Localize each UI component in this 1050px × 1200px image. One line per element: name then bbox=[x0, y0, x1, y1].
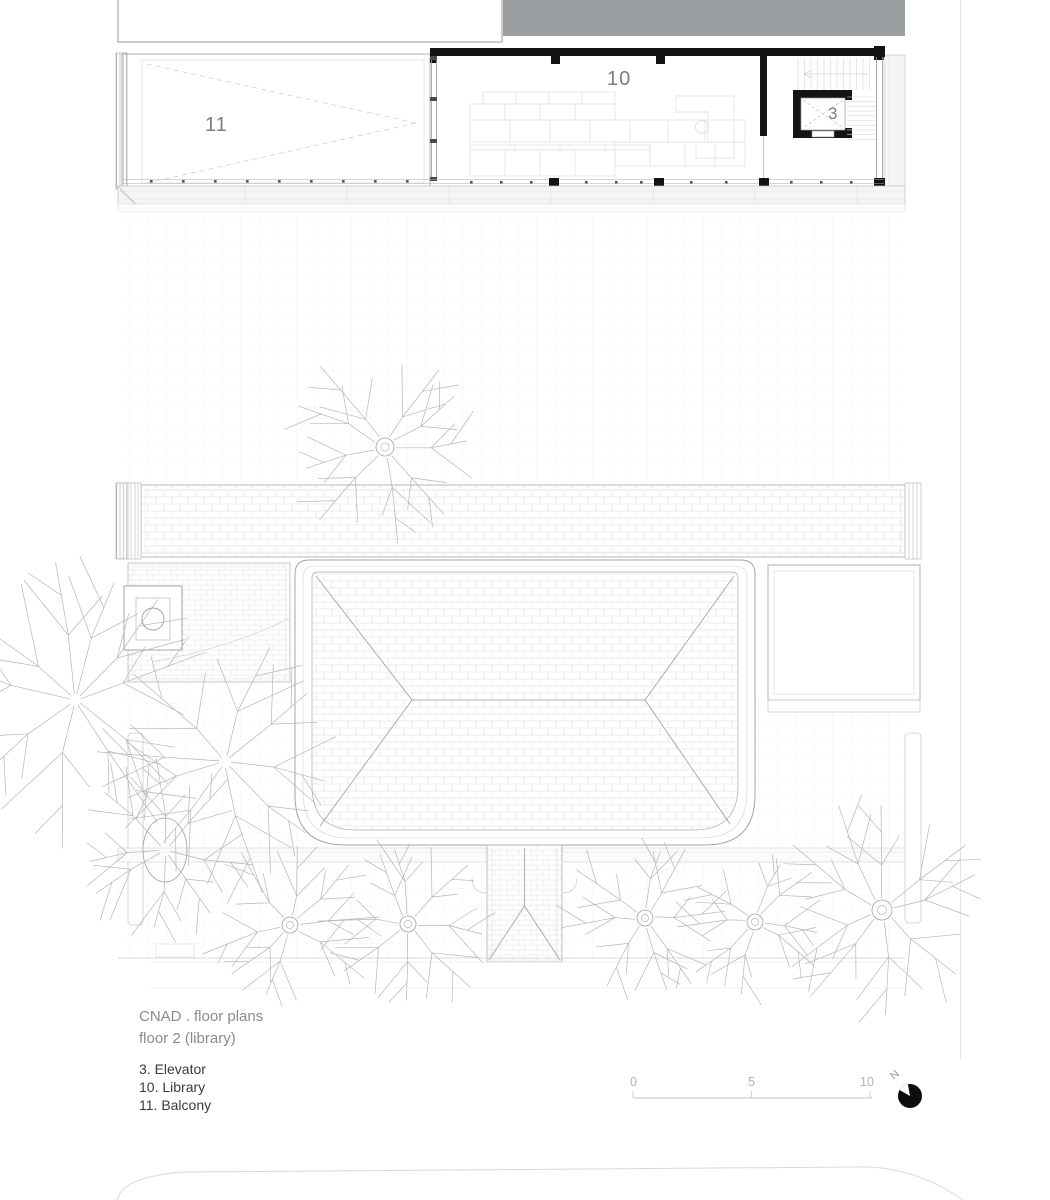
room-label-library: 10 bbox=[607, 68, 631, 90]
annex-room bbox=[768, 565, 920, 712]
legend: 3. Elevator 10. Library 11. Balcony bbox=[139, 1060, 211, 1114]
skylight bbox=[124, 586, 182, 650]
scale-tick-0: 0 bbox=[630, 1075, 637, 1089]
header-gray-block bbox=[503, 0, 905, 36]
title-block: CNAD . floor plans floor 2 (library) bbox=[139, 1006, 263, 1050]
elevator bbox=[793, 90, 852, 138]
neighbor-building-outline bbox=[118, 0, 502, 42]
room-label-elevator: 3 bbox=[828, 104, 838, 123]
planter-left bbox=[128, 733, 143, 925]
legend-item-balcony: 11. Balcony bbox=[139, 1096, 211, 1114]
courtyard-roof bbox=[124, 563, 290, 682]
north-label: N bbox=[888, 1068, 902, 1082]
legend-item-elevator: 3. Elevator bbox=[139, 1060, 211, 1078]
title-line-2: floor 2 (library) bbox=[139, 1028, 263, 1050]
balcony-walkway bbox=[118, 186, 905, 212]
north-arrow: N bbox=[888, 1068, 922, 1108]
right-edge bbox=[874, 46, 905, 190]
room-label-balcony: 11 bbox=[205, 114, 228, 136]
floor-plan-sheet: 11 10 3 0 5 10 N CNAD . floor plans floo… bbox=[0, 0, 1050, 1200]
planter-right bbox=[905, 733, 921, 923]
upper-floor-plan: 11 10 3 bbox=[116, 46, 905, 212]
scale-bar: 0 5 10 bbox=[630, 1075, 874, 1098]
library-furniture bbox=[470, 92, 745, 176]
balcony-room bbox=[116, 53, 430, 189]
legend-item-library: 10. Library bbox=[139, 1078, 211, 1096]
scale-tick-10: 10 bbox=[860, 1075, 874, 1089]
title-line-1: CNAD . floor plans bbox=[139, 1006, 263, 1028]
stairs-upper bbox=[798, 58, 870, 90]
scale-tick-5: 5 bbox=[748, 1075, 755, 1089]
main-hip-roof bbox=[295, 560, 755, 845]
roof-strip bbox=[116, 483, 921, 559]
